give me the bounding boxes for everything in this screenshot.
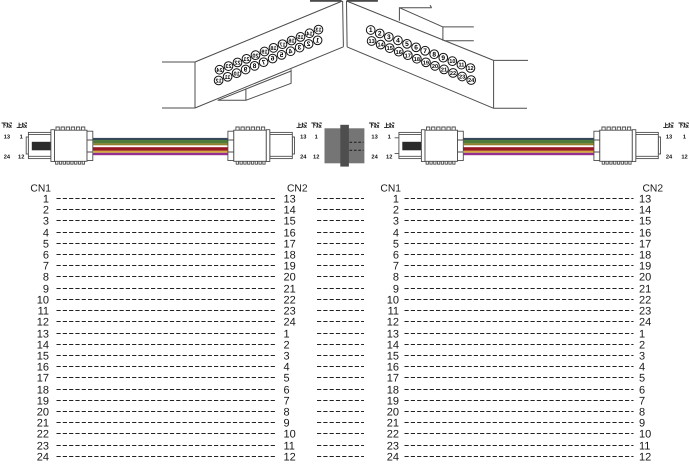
svg-text:20: 20 <box>252 53 258 59</box>
svg-text:4: 4 <box>288 48 292 55</box>
svg-text:20: 20 <box>284 272 296 284</box>
svg-text:12: 12 <box>681 154 687 160</box>
svg-text:1: 1 <box>20 134 23 140</box>
svg-text:17: 17 <box>387 373 399 385</box>
svg-text:16: 16 <box>288 39 294 45</box>
svg-text:24: 24 <box>387 452 399 464</box>
svg-text:10: 10 <box>449 59 455 65</box>
svg-text:24: 24 <box>4 154 11 160</box>
svg-text:22: 22 <box>387 429 399 441</box>
svg-text:1: 1 <box>388 134 391 140</box>
svg-text:21: 21 <box>441 68 447 74</box>
svg-text:19: 19 <box>423 60 429 66</box>
svg-text:15: 15 <box>639 216 651 228</box>
svg-text:10: 10 <box>233 71 239 77</box>
svg-text:15: 15 <box>297 35 303 41</box>
svg-text:24: 24 <box>468 78 475 84</box>
svg-text:23: 23 <box>225 64 231 70</box>
svg-text:10: 10 <box>639 429 651 441</box>
svg-text:12: 12 <box>215 79 221 85</box>
svg-text:12: 12 <box>387 317 399 329</box>
svg-text:20: 20 <box>639 272 651 284</box>
svg-text:18: 18 <box>270 46 276 52</box>
svg-text:17: 17 <box>37 373 49 385</box>
svg-text:12: 12 <box>313 154 319 160</box>
svg-text:2: 2 <box>378 31 382 38</box>
svg-text:3: 3 <box>43 216 49 228</box>
svg-text:2: 2 <box>306 41 310 48</box>
svg-text:12: 12 <box>18 154 24 160</box>
svg-text:3: 3 <box>387 34 391 41</box>
svg-text:18: 18 <box>414 57 420 63</box>
svg-text:10: 10 <box>284 429 296 441</box>
svg-text:24: 24 <box>300 154 307 160</box>
svg-text:19: 19 <box>261 50 267 56</box>
svg-text:16: 16 <box>396 50 402 56</box>
svg-text:9: 9 <box>243 67 247 74</box>
svg-text:6: 6 <box>270 56 274 63</box>
svg-text:6: 6 <box>414 44 418 51</box>
svg-text:8: 8 <box>252 63 256 70</box>
svg-text:1: 1 <box>369 27 373 34</box>
svg-text:24: 24 <box>666 154 673 160</box>
svg-text:4: 4 <box>396 37 400 44</box>
svg-text:13: 13 <box>666 134 672 140</box>
svg-text:24: 24 <box>284 317 296 329</box>
svg-text:5: 5 <box>284 373 290 385</box>
svg-text:13: 13 <box>315 28 321 34</box>
svg-text:3: 3 <box>393 216 399 228</box>
svg-text:24: 24 <box>371 154 378 160</box>
svg-text:15: 15 <box>387 46 393 52</box>
svg-text:23: 23 <box>459 75 465 81</box>
svg-text:1: 1 <box>315 134 318 140</box>
svg-text:22: 22 <box>450 71 456 77</box>
svg-text:9: 9 <box>441 55 445 62</box>
svg-text:13: 13 <box>4 134 10 140</box>
svg-text:24: 24 <box>37 452 49 464</box>
svg-text:12: 12 <box>37 317 49 329</box>
svg-text:12: 12 <box>639 452 651 464</box>
svg-text:3: 3 <box>297 45 301 52</box>
svg-text:24: 24 <box>216 68 223 74</box>
svg-text:5: 5 <box>639 373 645 385</box>
svg-text:12: 12 <box>386 154 392 160</box>
svg-text:12: 12 <box>467 66 473 72</box>
svg-text:11: 11 <box>225 75 231 81</box>
svg-text:15: 15 <box>284 216 296 228</box>
svg-text:22: 22 <box>234 61 240 67</box>
svg-text:1: 1 <box>683 134 686 140</box>
svg-text:8: 8 <box>43 272 49 284</box>
svg-text:17: 17 <box>405 53 411 59</box>
svg-text:7: 7 <box>261 59 265 66</box>
svg-text:5: 5 <box>279 52 283 59</box>
svg-text:13: 13 <box>300 134 306 140</box>
svg-text:5: 5 <box>405 41 409 48</box>
svg-text:8: 8 <box>432 51 436 58</box>
svg-text:17: 17 <box>279 42 285 48</box>
svg-text:22: 22 <box>37 429 49 441</box>
svg-text:1: 1 <box>315 37 319 44</box>
svg-text:21: 21 <box>243 57 249 63</box>
svg-text:8: 8 <box>393 272 399 284</box>
svg-text:24: 24 <box>639 317 651 329</box>
svg-text:7: 7 <box>423 48 427 55</box>
svg-text:14: 14 <box>378 43 385 49</box>
svg-text:12: 12 <box>284 452 296 464</box>
svg-text:20: 20 <box>432 64 438 70</box>
svg-text:11: 11 <box>458 63 464 69</box>
svg-text:14: 14 <box>306 31 313 37</box>
svg-text:13: 13 <box>368 39 374 45</box>
svg-text:13: 13 <box>371 134 377 140</box>
